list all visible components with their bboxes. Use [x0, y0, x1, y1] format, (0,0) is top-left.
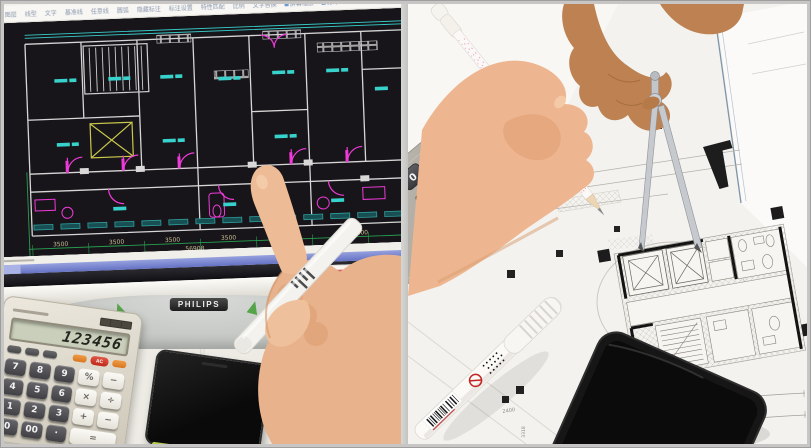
memory-key [25, 347, 40, 356]
right-photo-blueprints: 9000 30700 2400 3318 0 [408, 4, 807, 444]
photo-divider [401, 4, 408, 444]
dim-label: 3500 [109, 239, 125, 247]
plant-leaf-icon [297, 309, 314, 326]
toolbar-item: 图层 [5, 9, 17, 18]
calc-key: 4 [4, 378, 24, 397]
correct-key [112, 360, 127, 369]
calculator-display-value: 123456 [60, 327, 124, 353]
calc-key: · [45, 424, 68, 443]
calc-key: − [102, 372, 125, 391]
memory-key [43, 350, 58, 359]
calc-key: + [72, 408, 95, 427]
compass-knob [651, 72, 660, 81]
calc-key: 8 [28, 361, 51, 380]
sticker-red-text-streak [330, 268, 390, 272]
toolbar-item: 任意线 [91, 6, 109, 16]
phone-case-edge [152, 442, 252, 444]
calc-key: ÷ [99, 391, 122, 410]
plan-marker [334, 396, 339, 401]
calc-key: − [97, 411, 120, 430]
philips-logo: PHILIPS [170, 298, 228, 311]
photo-frame: 默认 图层 线型 文字 基准线 任意线 圆弧 隐藏标注 标注设置 特性匹配 比例… [0, 0, 811, 448]
dim-3318: 3318 [521, 426, 527, 438]
dim-label: 3500 [221, 234, 237, 242]
calc-key: 9 [53, 365, 76, 384]
start-button-area [4, 265, 21, 275]
command-text-streak [4, 259, 34, 263]
ac-key: AC [90, 356, 109, 367]
calc-key: 2 [23, 401, 46, 420]
calc-key: % [78, 368, 101, 387]
dim-label: 3500 [165, 236, 181, 244]
plan-marker [286, 420, 290, 424]
toolbar-item: 打印 [322, 4, 339, 6]
bezel-sticker [324, 263, 397, 287]
toolbar-item: 隐藏标注 [137, 4, 161, 13]
dim-label: 3500 [277, 232, 293, 240]
calculator: 123456 AC 7 8 9 % − 4 5 6 × ÷ [4, 295, 143, 444]
calc-key: 6 [50, 384, 73, 403]
calculator-brand-streak [13, 308, 49, 316]
clear-entry-key [72, 354, 87, 363]
dim-label: 7800 [353, 229, 369, 237]
calc-key: 00 [20, 421, 43, 440]
phone-speaker [201, 362, 227, 369]
memory-key [7, 345, 22, 354]
smartphone [144, 348, 272, 444]
solar-panel [100, 318, 133, 330]
calc-key: = [69, 428, 116, 444]
toolbar-item: 线型 [25, 8, 37, 17]
toolbar-item: 比例 [233, 4, 245, 10]
calc-key: × [75, 388, 98, 407]
toolbar-item: 圆弧 [117, 5, 129, 14]
calc-key: 5 [26, 381, 49, 400]
toolbar-item: 屏幕缩放 [285, 4, 314, 8]
toolbar-item: 编号 [347, 4, 364, 5]
toolbar-item: 特性匹配 [201, 4, 225, 11]
calc-key: 1 [4, 397, 21, 416]
calculator-keypad: 7 8 9 % − 4 5 6 × ÷ 1 2 3 + − 0 00 · = [4, 358, 125, 444]
calc-key: 0 [4, 417, 18, 436]
plant-leaf-icon [247, 300, 261, 315]
dim-label: 3500 [53, 241, 69, 249]
sticker-gray-text-streak [330, 274, 390, 278]
cad-floorplan-screen: 3500 3500 3500 3500 3500 7800 56908 [4, 6, 401, 258]
calc-key: 3 [47, 404, 70, 423]
left-photo-cad-monitor: 默认 图层 线型 文字 基准线 任意线 圆弧 隐藏标注 标注设置 特性匹配 比例… [4, 4, 401, 444]
blueprint-scene: 9000 30700 2400 3318 0 [408, 4, 807, 444]
calc-key: 7 [4, 358, 27, 377]
toolbar-item: 标注设置 [169, 4, 193, 12]
toolbar-item: 文字 [45, 8, 57, 17]
toolbar-item: 基准线 [65, 7, 83, 17]
toolbar-item: 文字替换 [253, 4, 277, 9]
